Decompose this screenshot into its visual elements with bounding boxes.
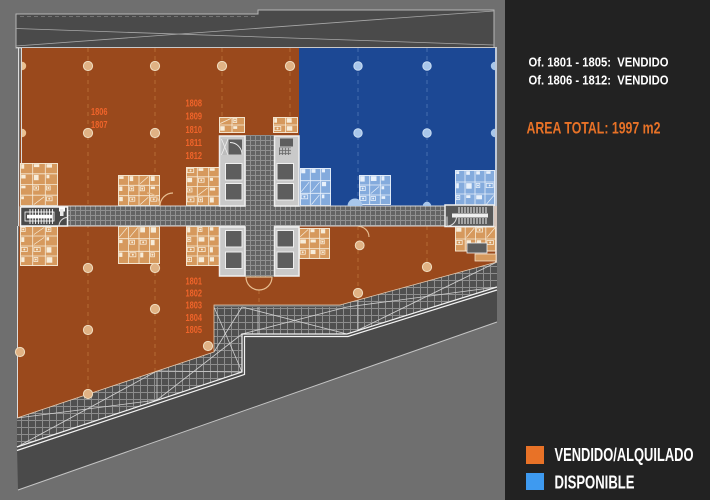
svg-text:1807: 1807: [91, 120, 108, 131]
svg-text:1804: 1804: [186, 313, 203, 324]
svg-text:1806: 1806: [91, 107, 108, 118]
svg-text:VENDIDO/ALQUILADO: VENDIDO/ALQUILADO: [555, 445, 694, 465]
svg-text:1801: 1801: [186, 277, 203, 288]
svg-text:1808: 1808: [186, 98, 203, 109]
svg-text:1812: 1812: [186, 151, 203, 162]
svg-text:1810: 1810: [186, 125, 203, 136]
svg-text:1811: 1811: [186, 138, 203, 149]
svg-text:AREA TOTAL: 1997 m2: AREA TOTAL: 1997 m2: [527, 120, 661, 138]
svg-text:1802: 1802: [186, 289, 203, 300]
svg-text:Of. 1801 - 1805: VENDIDO: Of. 1801 - 1805: VENDIDO: [529, 56, 669, 70]
svg-text:DISPONIBLE: DISPONIBLE: [555, 473, 635, 493]
svg-text:1803: 1803: [186, 301, 203, 312]
svg-text:Of. 1806 - 1812: VENDIDO: Of. 1806 - 1812: VENDIDO: [529, 74, 669, 88]
svg-text:1805: 1805: [186, 325, 203, 336]
svg-text:1809: 1809: [186, 112, 203, 123]
